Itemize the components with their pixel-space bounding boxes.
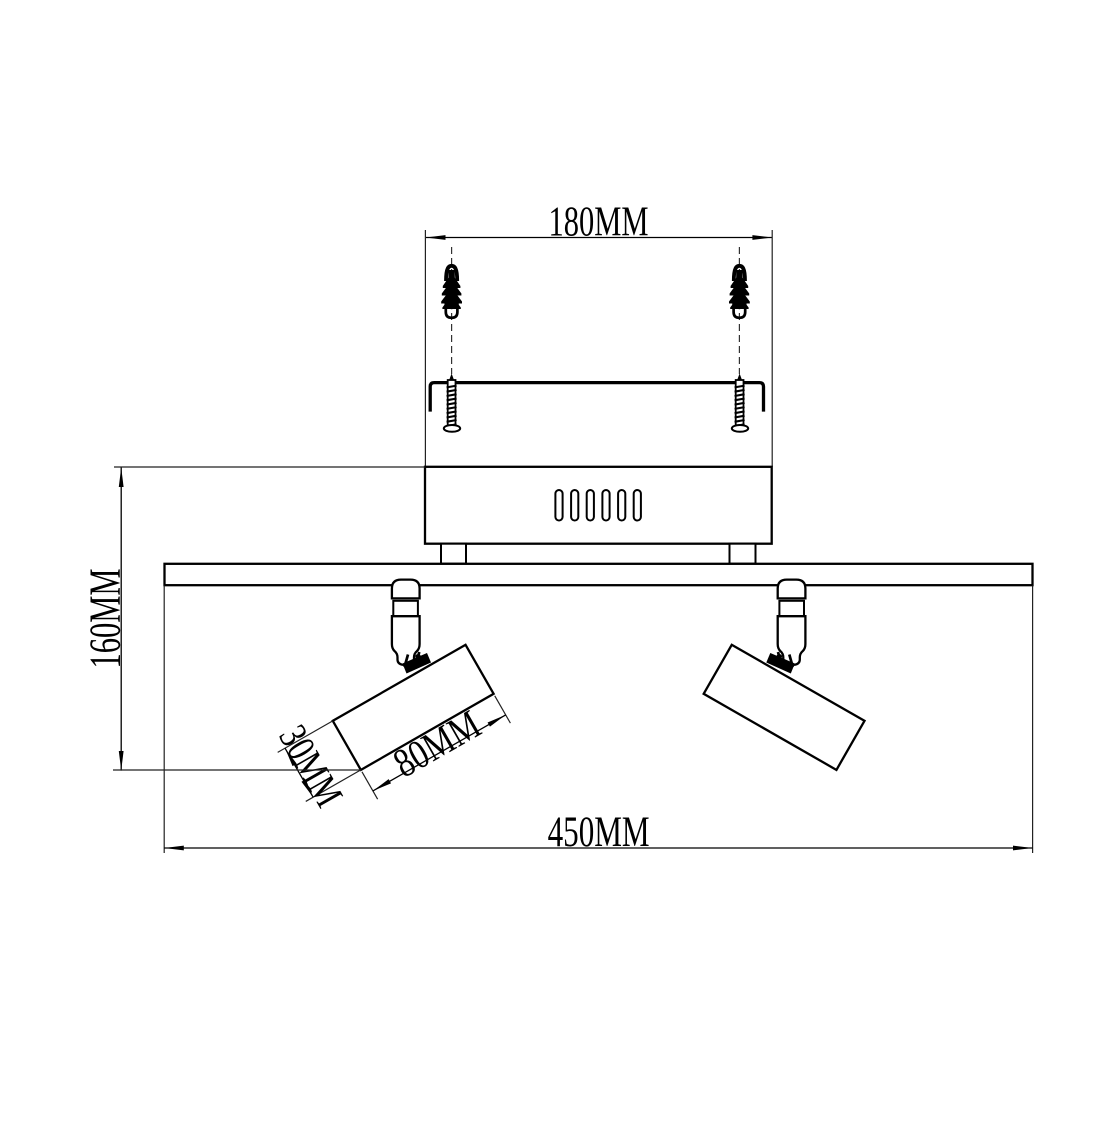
svg-text:160MM: 160MM <box>81 569 130 669</box>
svg-text:450MM: 450MM <box>548 809 650 856</box>
svg-text:180MM: 180MM <box>549 200 649 246</box>
